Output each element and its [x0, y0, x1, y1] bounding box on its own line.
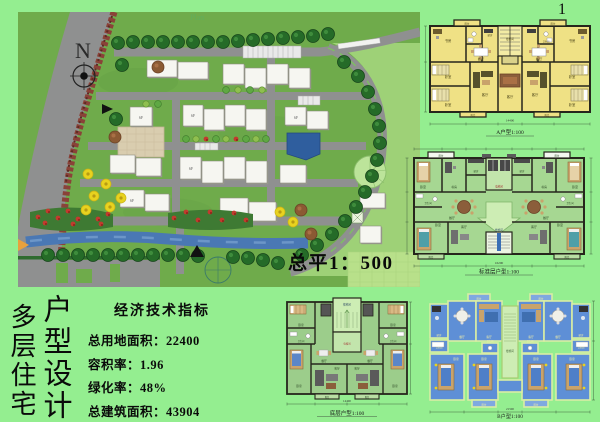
plan3-caption: 底层户型1:100 [330, 409, 365, 417]
title-multistory-residence: 多层住宅 [8, 303, 34, 419]
svg-text:卧室: 卧室 [435, 222, 441, 227]
svg-text:厨房: 厨房 [488, 33, 493, 37]
svg-text:电梯间: 电梯间 [343, 342, 351, 346]
svg-text:卧室: 卧室 [569, 74, 576, 79]
indicator-far: 容积率：1.96 [88, 354, 288, 373]
svg-text:16200: 16200 [495, 261, 504, 265]
svg-text:卧室: 卧室 [453, 357, 459, 361]
svg-text:阳台: 阳台 [555, 153, 560, 157]
svg-text:书房: 书房 [541, 184, 547, 189]
indicator-green-rate: 绿化率：48% [88, 377, 288, 396]
svg-text:楼梯间: 楼梯间 [343, 303, 351, 307]
svg-text:客厅: 客厅 [461, 224, 467, 229]
svg-text:卫生间: 卫生间 [566, 201, 574, 205]
svg-text:书房: 书房 [569, 38, 576, 43]
svg-text:客厅: 客厅 [531, 224, 537, 229]
svg-text:卫生间: 卫生间 [424, 201, 432, 205]
svg-text:阳台: 阳台 [534, 403, 539, 407]
svg-text:客厅: 客厅 [486, 335, 492, 339]
svg-text:卧室: 卧室 [390, 323, 396, 327]
plan4-caption: B户型1:100 [497, 412, 523, 420]
svg-text:阳台: 阳台 [465, 21, 470, 25]
floor-plan-4: 阳台 阳台 厨房 餐厅 客厅 客厅 餐厅 厨房 卫生间 卫生间 卫生间 卫生间 … [424, 286, 596, 420]
svg-text:阳台: 阳台 [551, 21, 556, 25]
svg-text:14400: 14400 [343, 399, 351, 403]
svg-text:卧室: 卧室 [569, 357, 575, 361]
paved-plaza [118, 127, 164, 157]
svg-text:客厅: 客厅 [482, 92, 489, 97]
svg-text:卧室: 卧室 [569, 102, 576, 107]
pond-shape [287, 133, 320, 160]
svg-text:客厅: 客厅 [532, 92, 539, 97]
svg-text:卧室: 卧室 [298, 323, 304, 327]
title-unit-design: 户型设计 [40, 294, 69, 422]
svg-text:卧室: 卧室 [392, 384, 398, 388]
svg-text:卧室: 卧室 [557, 222, 563, 227]
svg-text:N: N [75, 38, 91, 63]
plan2-caption: 标准层户型1:100 [479, 268, 519, 276]
svg-text:客厅: 客厅 [354, 367, 360, 371]
site-watermark: Plan [190, 13, 204, 22]
svg-text:电梯间: 电梯间 [495, 185, 503, 189]
svg-text:14400: 14400 [506, 119, 515, 123]
indicator-gfa: 总建筑面积：43904 [88, 401, 288, 420]
indicator-land-area: 总用地面积：22400 [88, 330, 288, 349]
svg-text:餐厅: 餐厅 [459, 335, 465, 339]
svg-text:阳台: 阳台 [471, 113, 476, 117]
svg-text:卧室: 卧室 [533, 357, 539, 361]
svg-text:阳台: 阳台 [539, 296, 544, 300]
svg-text:厨房: 厨房 [474, 169, 479, 173]
svg-text:餐厅: 餐厅 [555, 335, 561, 339]
floor-plan-2: 卧室 书房 厨房 卫生间 餐厅 卧室 客厅 电梯间 楼梯间 卧室 书房 厨房 卫… [402, 144, 596, 276]
site-plan: 6F 6F 6F 6F 6F 6F [18, 12, 420, 287]
svg-text:阳台: 阳台 [565, 255, 570, 259]
svg-text:楼梯间: 楼梯间 [506, 37, 514, 41]
indicators-title: 经济技术指标 [114, 300, 288, 320]
svg-text:卧室: 卧室 [420, 184, 426, 189]
svg-text:阳台: 阳台 [439, 153, 444, 157]
svg-text:餐厅: 餐厅 [449, 215, 455, 220]
plan1-caption: A户型1:100 [496, 128, 524, 136]
svg-text:书房: 书房 [445, 38, 452, 43]
svg-text:客厅: 客厅 [334, 367, 340, 371]
svg-text:客厅: 客厅 [528, 335, 534, 339]
svg-text:21500: 21500 [506, 407, 514, 411]
svg-text:阳台: 阳台 [482, 403, 487, 407]
svg-text:卧室: 卧室 [445, 102, 452, 107]
svg-text:楼梯间: 楼梯间 [495, 228, 503, 232]
svg-text:餐厅: 餐厅 [321, 359, 327, 363]
svg-text:卧室: 卧室 [296, 384, 302, 388]
svg-text:餐厅: 餐厅 [543, 215, 549, 220]
svg-text:卧室: 卧室 [445, 74, 452, 79]
svg-text:楼梯间: 楼梯间 [506, 349, 514, 353]
floor-plan-3: 楼梯间 电梯间 卧室 卫生间 卧室 餐厅 客厅 卧室 卫生间 卧室 餐厅 客厅 … [281, 288, 413, 420]
presentation-board: 6F 6F 6F 6F 6F 6F [0, 0, 600, 422]
svg-text:餐厅: 餐厅 [536, 57, 543, 62]
svg-text:餐厅: 餐厅 [478, 57, 485, 62]
svg-text:卧室: 卧室 [481, 357, 487, 361]
svg-text:书房: 书房 [451, 184, 457, 189]
svg-text:阳台: 阳台 [429, 255, 434, 259]
svg-text:厨房: 厨房 [520, 169, 525, 173]
svg-text:厨房: 厨房 [579, 333, 584, 337]
site-plan-scale-label: 总平1：500 [288, 248, 394, 275]
svg-text:阳台: 阳台 [545, 113, 550, 117]
floor-plan-1: 书房 餐厅 卧室 卧室 客厅 客厅 书房 餐厅 卧室 卧室 客厅 楼梯间 厨房 … [424, 14, 596, 140]
svg-text:阳台: 阳台 [477, 296, 482, 300]
svg-text:卧室: 卧室 [572, 184, 578, 189]
svg-text:客厅: 客厅 [507, 94, 514, 99]
svg-text:厨房: 厨房 [437, 333, 442, 337]
svg-text:餐厅: 餐厅 [367, 359, 373, 363]
economic-indicators: 经济技术指标 总用地面积：22400 容积率：1.96 绿化率：48% 总建筑面… [88, 300, 288, 422]
